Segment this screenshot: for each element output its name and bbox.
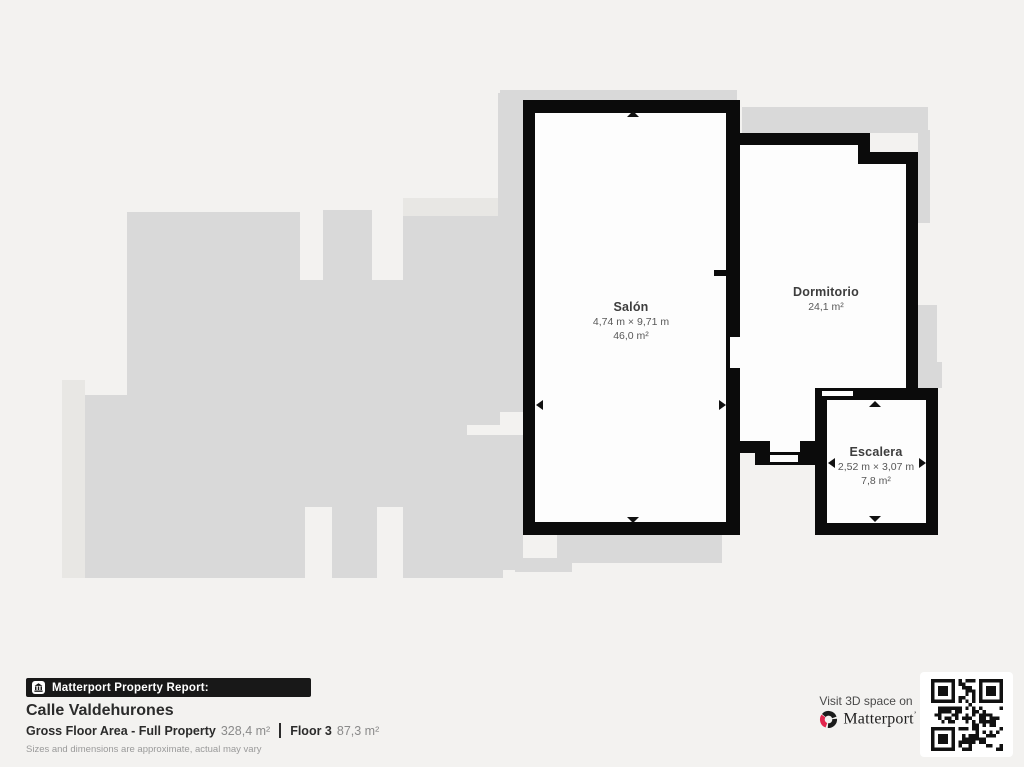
- property-address: Calle Valdehurones: [26, 702, 174, 720]
- window-corridor: [770, 455, 798, 462]
- room-name: Dormitorio: [793, 285, 859, 299]
- gross-floor-area-label: Gross Floor Area - Full Property: [26, 724, 216, 738]
- report-title-bar: Matterport Property Report:: [26, 678, 311, 697]
- matterport-wordmark: Matterport’: [843, 710, 916, 728]
- floor-label: Floor 3: [290, 724, 332, 738]
- report-bar-label: Matterport Property Report:: [52, 682, 209, 694]
- dimension-arrow-icon: [869, 516, 881, 522]
- room-name: Salón: [593, 300, 669, 314]
- room-area: 46,0 m²: [593, 330, 669, 342]
- floor-area-value: 87,3 m²: [337, 724, 379, 738]
- room-dimensions: 2,52 m × 3,07 m: [838, 461, 914, 473]
- matterport-floor-plan-report: { "plan": { "floor_label_internal": "Flo…: [0, 0, 1024, 767]
- matterport-logo-icon: [819, 710, 838, 729]
- gross-floor-area-value: 328,4 m²: [221, 724, 270, 738]
- matterport-brand: Matterport’: [818, 710, 918, 729]
- room-name: Escalera: [838, 445, 914, 459]
- room-label-salon: Salón 4,74 m × 9,71 m 46,0 m²: [593, 300, 669, 342]
- building-icon: [32, 681, 45, 694]
- floor-area-stats: Gross Floor Area - Full Property 328,4 m…: [26, 723, 379, 738]
- room-label-dormitorio: Dormitorio 24,1 m²: [793, 285, 859, 313]
- qr-code: [920, 672, 1013, 757]
- room-dormitorio-right: [858, 164, 906, 392]
- visit-3d-text: Visit 3D space on: [818, 694, 914, 708]
- dimension-arrow-icon: [627, 517, 639, 523]
- dimension-arrow-icon: [627, 111, 639, 117]
- interior-wall-stub: [714, 270, 727, 276]
- dimension-arrow-icon: [719, 400, 726, 410]
- dimension-arrow-icon: [828, 458, 835, 468]
- disclaimer-text: Sizes and dimensions are approximate, ac…: [26, 744, 262, 755]
- room-label-escalera: Escalera 2,52 m × 3,07 m 7,8 m²: [838, 445, 914, 487]
- dimension-arrow-icon: [869, 401, 881, 407]
- divider: [279, 723, 281, 738]
- room-area: 7,8 m²: [838, 475, 914, 487]
- room-dimensions: 4,74 m × 9,71 m: [593, 316, 669, 328]
- room-area: 24,1 m²: [793, 301, 859, 313]
- window-escalera: [822, 391, 853, 396]
- dimension-arrow-icon: [919, 458, 926, 468]
- dimension-arrow-icon: [536, 400, 543, 410]
- door-opening: [730, 337, 740, 368]
